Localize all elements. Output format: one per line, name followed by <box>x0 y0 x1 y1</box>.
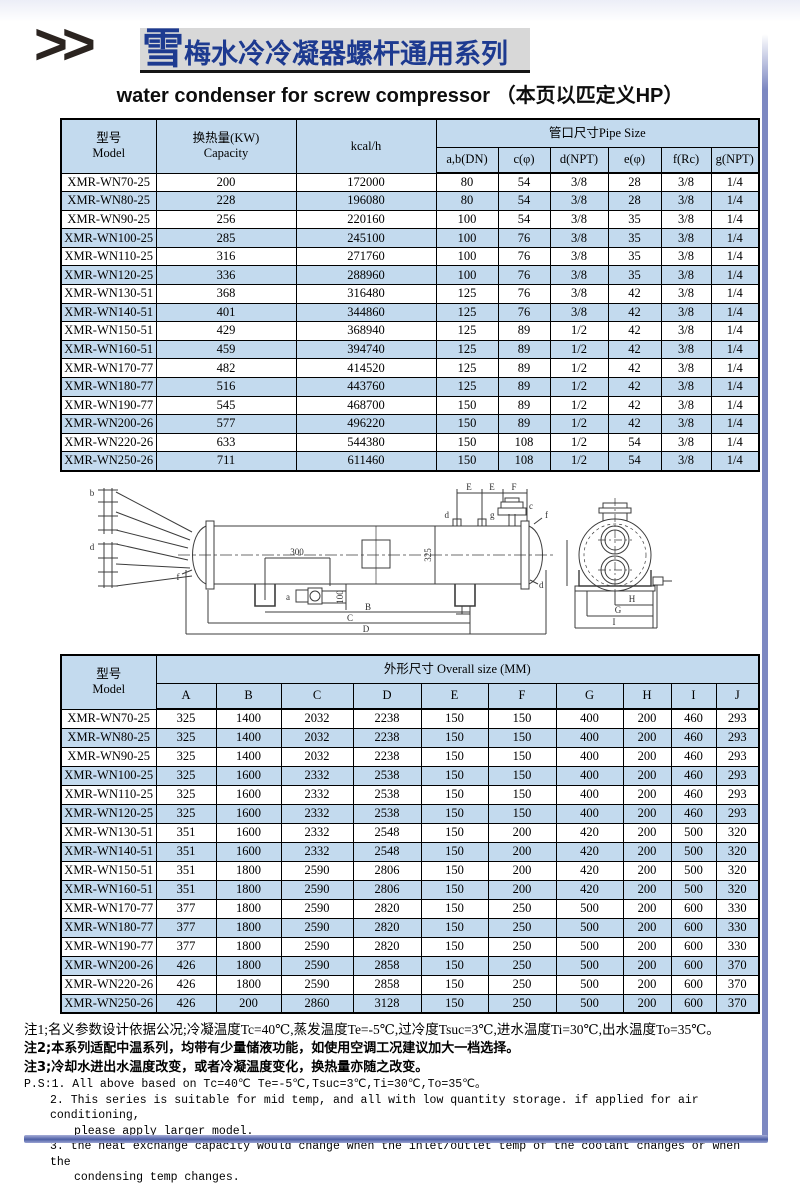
col-header-A: A <box>156 684 216 710</box>
value-cell: 1/4 <box>711 192 759 211</box>
value-cell: 496220 <box>296 415 436 434</box>
value-cell: 3/8 <box>550 247 608 266</box>
value-cell: 108 <box>498 452 550 471</box>
value-cell: 100 <box>436 210 498 229</box>
value-cell: 200 <box>623 880 671 899</box>
value-cell: 42 <box>608 340 661 359</box>
value-cell: 3/8 <box>550 266 608 285</box>
note-cn-3: 注3;冷却水进出水温度改变，或者冷凝温度变化，换热量亦随之改变。 <box>24 1058 760 1077</box>
value-cell: 400 <box>556 804 623 823</box>
col-header-f: f(Rc) <box>661 148 711 174</box>
value-cell: 250 <box>488 956 556 975</box>
dim-label-d-right: d <box>539 580 544 590</box>
table-row: XMR-WN190-773771800259028201502505002006… <box>61 937 759 956</box>
value-cell: 125 <box>436 340 498 359</box>
value-cell: 2238 <box>353 709 421 728</box>
value-cell: 1/4 <box>711 266 759 285</box>
value-cell: 414520 <box>296 359 436 378</box>
value-cell: 1600 <box>216 785 281 804</box>
value-cell: 400 <box>556 766 623 785</box>
overall-size-table-wrap: 型号 Model 外形尺寸 Overall size (MM) A B C D … <box>60 654 760 1014</box>
value-cell: 330 <box>716 899 759 918</box>
model-cell: XMR-WN120-25 <box>61 266 156 285</box>
col-header-capacity: 换热量(KW) Capacity <box>156 119 296 173</box>
value-cell: 3/8 <box>550 210 608 229</box>
value-cell: 150 <box>421 728 488 747</box>
value-cell: 220160 <box>296 210 436 229</box>
value-cell: 200 <box>156 173 296 192</box>
value-cell: 42 <box>608 396 661 415</box>
value-cell: 150 <box>436 452 498 471</box>
table-row: XMR-WN110-25316271760100763/8353/81/4 <box>61 247 759 266</box>
value-cell: 1/2 <box>550 452 608 471</box>
table-row: XMR-WN130-513511600233225481502004202005… <box>61 823 759 842</box>
col-header-I2: I <box>671 684 716 710</box>
value-cell: 443760 <box>296 378 436 397</box>
value-cell: 3/8 <box>550 285 608 304</box>
value-cell: 1800 <box>216 975 281 994</box>
value-cell: 460 <box>671 804 716 823</box>
model-cell: XMR-WN190-77 <box>61 937 156 956</box>
table-row: XMR-WN180-773771800259028201502505002006… <box>61 918 759 937</box>
value-cell: 2806 <box>353 880 421 899</box>
dim-label-b-nozzle: b <box>90 488 95 498</box>
value-cell: 460 <box>671 747 716 766</box>
value-cell: 2820 <box>353 918 421 937</box>
value-cell: 76 <box>498 285 550 304</box>
value-cell: 2590 <box>281 956 353 975</box>
value-cell: 500 <box>671 823 716 842</box>
table-row: XMR-WN250-267116114601501081/2543/81/4 <box>61 452 759 471</box>
value-cell: 500 <box>556 937 623 956</box>
note-en-3a: 3. the heat exchange capacity would chan… <box>24 1139 760 1170</box>
value-cell: 80 <box>436 192 498 211</box>
value-cell: 271760 <box>296 247 436 266</box>
value-cell: 1/2 <box>550 359 608 378</box>
col-header-c: c(φ) <box>498 148 550 174</box>
col-header-model-cn: 型号 <box>62 131 156 146</box>
table-row: XMR-WN160-513511800259028061502004202005… <box>61 880 759 899</box>
col-header-overall-size: 外形尺寸 Overall size (MM) <box>156 655 759 684</box>
value-cell: 320 <box>716 842 759 861</box>
model-cell: XMR-WN90-25 <box>61 210 156 229</box>
value-cell: 42 <box>608 285 661 304</box>
value-cell: 400 <box>556 728 623 747</box>
value-cell: 42 <box>608 359 661 378</box>
col-header-G2: G <box>556 684 623 710</box>
table-row: XMR-WN80-2522819608080543/8283/81/4 <box>61 192 759 211</box>
value-cell: 2332 <box>281 842 353 861</box>
col-header-H2: H <box>623 684 671 710</box>
value-cell: 200 <box>623 956 671 975</box>
dim-label-d-nozzle-left: d <box>90 542 95 552</box>
note-cn-1: 注1;名义参数设计依据公况;冷凝温度Tc=40℃,蒸发温度Te=-5℃,过冷度T… <box>24 1020 760 1039</box>
value-cell: 200 <box>216 994 281 1013</box>
value-cell: 600 <box>671 918 716 937</box>
table-row: XMR-WN90-25256220160100543/8353/81/4 <box>61 210 759 229</box>
table-row: XMR-WN220-266335443801501081/2543/81/4 <box>61 433 759 452</box>
table-row: XMR-WN200-26577496220150891/2423/81/4 <box>61 415 759 434</box>
value-cell: 420 <box>556 823 623 842</box>
model-cell: XMR-WN120-25 <box>61 804 156 823</box>
value-cell: 76 <box>498 229 550 248</box>
value-cell: 2858 <box>353 956 421 975</box>
value-cell: 3/8 <box>661 266 711 285</box>
value-cell: 3/8 <box>661 433 711 452</box>
value-cell: 500 <box>556 899 623 918</box>
value-cell: 76 <box>498 303 550 322</box>
value-cell: 200 <box>623 937 671 956</box>
value-cell: 370 <box>716 956 759 975</box>
value-cell: 1/4 <box>711 322 759 341</box>
model-cell: XMR-WN130-51 <box>61 823 156 842</box>
col-header-model2: 型号 Model <box>61 655 156 709</box>
value-cell: 42 <box>608 303 661 322</box>
value-cell: 351 <box>156 861 216 880</box>
value-cell: 3/8 <box>661 452 711 471</box>
value-cell: 500 <box>671 861 716 880</box>
value-cell: 1/4 <box>711 303 759 322</box>
value-cell: 125 <box>436 303 498 322</box>
value-cell: 2332 <box>281 823 353 842</box>
value-cell: 2858 <box>353 975 421 994</box>
model-cell: XMR-WN160-51 <box>61 880 156 899</box>
value-cell: 370 <box>716 994 759 1013</box>
model-cell: XMR-WN80-25 <box>61 192 156 211</box>
page-title: 梅水冷冷凝器螺杆通用系列 <box>184 39 508 70</box>
value-cell: 460 <box>671 785 716 804</box>
col-header-kcal: kcal/h <box>296 119 436 173</box>
value-cell: 325 <box>156 766 216 785</box>
value-cell: 125 <box>436 285 498 304</box>
value-cell: 28 <box>608 192 661 211</box>
value-cell: 35 <box>608 247 661 266</box>
value-cell: 150 <box>421 823 488 842</box>
value-cell: 3128 <box>353 994 421 1013</box>
value-cell: 1400 <box>216 728 281 747</box>
table-row: XMR-WN160-51459394740125891/2423/81/4 <box>61 340 759 359</box>
col-header-pipe-size: 管口尺寸Pipe Size <box>436 119 759 148</box>
model-cell: XMR-WN220-26 <box>61 433 156 452</box>
value-cell: 2238 <box>353 747 421 766</box>
value-cell: 100 <box>436 247 498 266</box>
col-header-J: J <box>716 684 759 710</box>
model-cell: XMR-WN80-25 <box>61 728 156 747</box>
value-cell: 2332 <box>281 785 353 804</box>
value-cell: 1/2 <box>550 433 608 452</box>
value-cell: 316 <box>156 247 296 266</box>
value-cell: 245100 <box>296 229 436 248</box>
value-cell: 150 <box>488 709 556 728</box>
value-cell: 2820 <box>353 899 421 918</box>
table-row: XMR-WN180-77516443760125891/2423/81/4 <box>61 378 759 397</box>
value-cell: 293 <box>716 766 759 785</box>
value-cell: 325 <box>156 785 216 804</box>
value-cell: 2590 <box>281 880 353 899</box>
value-cell: 460 <box>671 728 716 747</box>
value-cell: 89 <box>498 378 550 397</box>
value-cell: 711 <box>156 452 296 471</box>
col-header-model: 型号 Model <box>61 119 156 173</box>
col-header-capacity-en: Capacity <box>157 146 296 161</box>
value-cell: 76 <box>498 266 550 285</box>
dim-label-B: B <box>365 602 371 612</box>
value-cell: 1800 <box>216 899 281 918</box>
value-cell: 150 <box>488 728 556 747</box>
value-cell: 228 <box>156 192 296 211</box>
note-en-1: P.S:1. All above based on Tc=40℃ Te=-5℃,… <box>24 1077 760 1093</box>
value-cell: 600 <box>671 956 716 975</box>
value-cell: 1/2 <box>550 340 608 359</box>
value-cell: 150 <box>436 396 498 415</box>
value-cell: 394740 <box>296 340 436 359</box>
value-cell: 351 <box>156 823 216 842</box>
value-cell: 150 <box>488 747 556 766</box>
value-cell: 200 <box>623 823 671 842</box>
table-row: XMR-WN220-264261800259028581502505002006… <box>61 975 759 994</box>
value-cell: 600 <box>671 975 716 994</box>
value-cell: 3/8 <box>661 322 711 341</box>
value-cell: 3/8 <box>661 285 711 304</box>
table-row: XMR-WN100-253251600233225381501504002004… <box>61 766 759 785</box>
table-row: XMR-WN200-264261800259028581502505002006… <box>61 956 759 975</box>
table-row: XMR-WN150-513511800259028061502004202005… <box>61 861 759 880</box>
model-cell: XMR-WN150-51 <box>61 322 156 341</box>
table-row: XMR-WN70-2532514002032223815015040020046… <box>61 709 759 728</box>
model-cell: XMR-WN180-77 <box>61 378 156 397</box>
col-header-model-en: Model <box>62 146 156 161</box>
value-cell: 500 <box>556 994 623 1013</box>
note-en-2a: 2. This series is suitable for mid temp,… <box>24 1093 760 1124</box>
dim-label-F: F <box>511 482 516 492</box>
page-subtitle: water condenser for screw compressor （本页… <box>90 79 710 108</box>
value-cell: 3/8 <box>661 340 711 359</box>
value-cell: 3/8 <box>661 359 711 378</box>
value-cell: 482 <box>156 359 296 378</box>
value-cell: 150 <box>421 709 488 728</box>
value-cell: 3/8 <box>550 229 608 248</box>
value-cell: 1/4 <box>711 433 759 452</box>
value-cell: 370 <box>716 975 759 994</box>
value-cell: 150 <box>421 975 488 994</box>
page-edge-bar-bottom <box>24 1135 768 1143</box>
value-cell: 400 <box>556 785 623 804</box>
value-cell: 76 <box>498 247 550 266</box>
value-cell: 100 <box>436 266 498 285</box>
value-cell: 344860 <box>296 303 436 322</box>
value-cell: 1/2 <box>550 322 608 341</box>
value-cell: 400 <box>556 747 623 766</box>
dim-label-a-valve: a <box>286 592 290 602</box>
value-cell: 150 <box>421 747 488 766</box>
value-cell: 89 <box>498 359 550 378</box>
table-row: XMR-WN80-2532514002032223815015040020046… <box>61 728 759 747</box>
value-cell: 35 <box>608 229 661 248</box>
value-cell: 250 <box>488 975 556 994</box>
value-cell: 150 <box>421 785 488 804</box>
value-cell: 1/4 <box>711 340 759 359</box>
value-cell: 150 <box>436 415 498 434</box>
table-row: XMR-WN130-51368316480125763/8423/81/4 <box>61 285 759 304</box>
value-cell: 325 <box>156 709 216 728</box>
value-cell: 2538 <box>353 785 421 804</box>
dim-label-E2: E <box>489 482 495 492</box>
value-cell: 2032 <box>281 728 353 747</box>
value-cell: 577 <box>156 415 296 434</box>
value-cell: 54 <box>608 452 661 471</box>
table-row: XMR-WN90-2532514002032223815015040020046… <box>61 747 759 766</box>
value-cell: 150 <box>421 804 488 823</box>
value-cell: 400 <box>556 709 623 728</box>
col-header-capacity-cn: 换热量(KW) <box>157 131 296 146</box>
value-cell: 611460 <box>296 452 436 471</box>
value-cell: 325 <box>156 747 216 766</box>
model-cell: XMR-WN160-51 <box>61 340 156 359</box>
value-cell: 544380 <box>296 433 436 452</box>
model-cell: XMR-WN140-51 <box>61 842 156 861</box>
value-cell: 200 <box>623 709 671 728</box>
value-cell: 89 <box>498 396 550 415</box>
value-cell: 200 <box>623 728 671 747</box>
value-cell: 200 <box>488 823 556 842</box>
value-cell: 1800 <box>216 918 281 937</box>
col-header-D: D <box>353 684 421 710</box>
value-cell: 1/4 <box>711 396 759 415</box>
model-cell: XMR-WN100-25 <box>61 766 156 785</box>
value-cell: 401 <box>156 303 296 322</box>
value-cell: 1600 <box>216 842 281 861</box>
value-cell: 3/8 <box>661 303 711 322</box>
value-cell: 330 <box>716 937 759 956</box>
value-cell: 1600 <box>216 766 281 785</box>
table-row: XMR-WN150-51429368940125891/2423/81/4 <box>61 322 759 341</box>
datasheet-page: >> 雪 梅水冷冷凝器螺杆通用系列 water condenser for sc… <box>0 0 800 1184</box>
model-cell: XMR-WN150-51 <box>61 861 156 880</box>
value-cell: 150 <box>421 994 488 1013</box>
value-cell: 250 <box>488 937 556 956</box>
value-cell: 330 <box>716 918 759 937</box>
value-cell: 2332 <box>281 804 353 823</box>
value-cell: 150 <box>421 880 488 899</box>
dim-label-f-left: f <box>177 572 180 582</box>
col-header-model2-cn: 型号 <box>62 667 156 682</box>
value-cell: 1400 <box>216 747 281 766</box>
value-cell: 429 <box>156 322 296 341</box>
col-header-d: d(NPT) <box>550 148 608 174</box>
value-cell: 325 <box>156 804 216 823</box>
pipe-size-table-wrap: 型号 Model 换热量(KW) Capacity kcal/h 管口尺寸Pip… <box>60 118 760 472</box>
value-cell: 2538 <box>353 766 421 785</box>
value-cell: 3/8 <box>550 303 608 322</box>
note-cn-2: 注2;本系列适配中温系列，均带有少量储液功能，如使用空调工况建议加大一档选择。 <box>24 1039 760 1058</box>
value-cell: 500 <box>556 918 623 937</box>
value-cell: 3/8 <box>661 210 711 229</box>
value-cell: 54 <box>498 210 550 229</box>
table-row: XMR-WN250-264262002860312815025050020060… <box>61 994 759 1013</box>
value-cell: 600 <box>671 899 716 918</box>
chevrons-logo: >> <box>34 16 90 74</box>
value-cell: 293 <box>716 747 759 766</box>
value-cell: 285 <box>156 229 296 248</box>
value-cell: 377 <box>156 918 216 937</box>
value-cell: 3/8 <box>550 192 608 211</box>
value-cell: 150 <box>421 842 488 861</box>
model-cell: XMR-WN140-51 <box>61 303 156 322</box>
value-cell: 1/2 <box>550 378 608 397</box>
value-cell: 42 <box>608 415 661 434</box>
value-cell: 35 <box>608 266 661 285</box>
value-cell: 2332 <box>281 766 353 785</box>
value-cell: 3/8 <box>661 378 711 397</box>
value-cell: 54 <box>608 433 661 452</box>
value-cell: 150 <box>488 785 556 804</box>
value-cell: 200 <box>623 747 671 766</box>
value-cell: 125 <box>436 359 498 378</box>
value-cell: 320 <box>716 861 759 880</box>
model-cell: XMR-WN180-77 <box>61 918 156 937</box>
value-cell: 150 <box>436 433 498 452</box>
pipe-size-table: 型号 Model 换热量(KW) Capacity kcal/h 管口尺寸Pip… <box>60 118 760 472</box>
value-cell: 150 <box>421 766 488 785</box>
value-cell: 1/4 <box>711 452 759 471</box>
value-cell: 3/8 <box>550 173 608 192</box>
dim-label-d-top: d <box>445 510 450 520</box>
value-cell: 250 <box>488 994 556 1013</box>
table-row: XMR-WN140-513511600233225481502004202005… <box>61 842 759 861</box>
page-edge-bar-right <box>762 34 768 1140</box>
table-row: XMR-WN120-253251600233225381501504002004… <box>61 804 759 823</box>
value-cell: 351 <box>156 880 216 899</box>
table-row: XMR-WN110-253251600233225381501504002004… <box>61 785 759 804</box>
value-cell: 293 <box>716 728 759 747</box>
value-cell: 600 <box>671 937 716 956</box>
value-cell: 293 <box>716 785 759 804</box>
value-cell: 100 <box>436 229 498 248</box>
value-cell: 108 <box>498 433 550 452</box>
technical-drawing: b d f a 300 100 325 B C D E E F d g c f … <box>50 474 750 656</box>
value-cell: 1/2 <box>550 415 608 434</box>
value-cell: 125 <box>436 322 498 341</box>
value-cell: 500 <box>671 880 716 899</box>
table-row: XMR-WN70-2520017200080543/8283/81/4 <box>61 173 759 192</box>
value-cell: 3/8 <box>661 247 711 266</box>
dim-label-f-right: f <box>545 510 548 520</box>
dim-label-I: I <box>613 617 616 627</box>
value-cell: 256 <box>156 210 296 229</box>
value-cell: 633 <box>156 433 296 452</box>
table-row: XMR-WN170-77482414520125891/2423/81/4 <box>61 359 759 378</box>
value-cell: 368940 <box>296 322 436 341</box>
value-cell: 3/8 <box>661 229 711 248</box>
value-cell: 320 <box>716 823 759 842</box>
model-cell: XMR-WN110-25 <box>61 785 156 804</box>
value-cell: 288960 <box>296 266 436 285</box>
value-cell: 200 <box>488 880 556 899</box>
value-cell: 89 <box>498 322 550 341</box>
value-cell: 80 <box>436 173 498 192</box>
value-cell: 200 <box>623 804 671 823</box>
value-cell: 2538 <box>353 804 421 823</box>
model-cell: XMR-WN70-25 <box>61 709 156 728</box>
dim-label-H: H <box>629 594 636 604</box>
value-cell: 420 <box>556 861 623 880</box>
value-cell: 420 <box>556 842 623 861</box>
value-cell: 293 <box>716 804 759 823</box>
value-cell: 54 <box>498 192 550 211</box>
value-cell: 250 <box>488 918 556 937</box>
value-cell: 426 <box>156 994 216 1013</box>
value-cell: 1800 <box>216 956 281 975</box>
